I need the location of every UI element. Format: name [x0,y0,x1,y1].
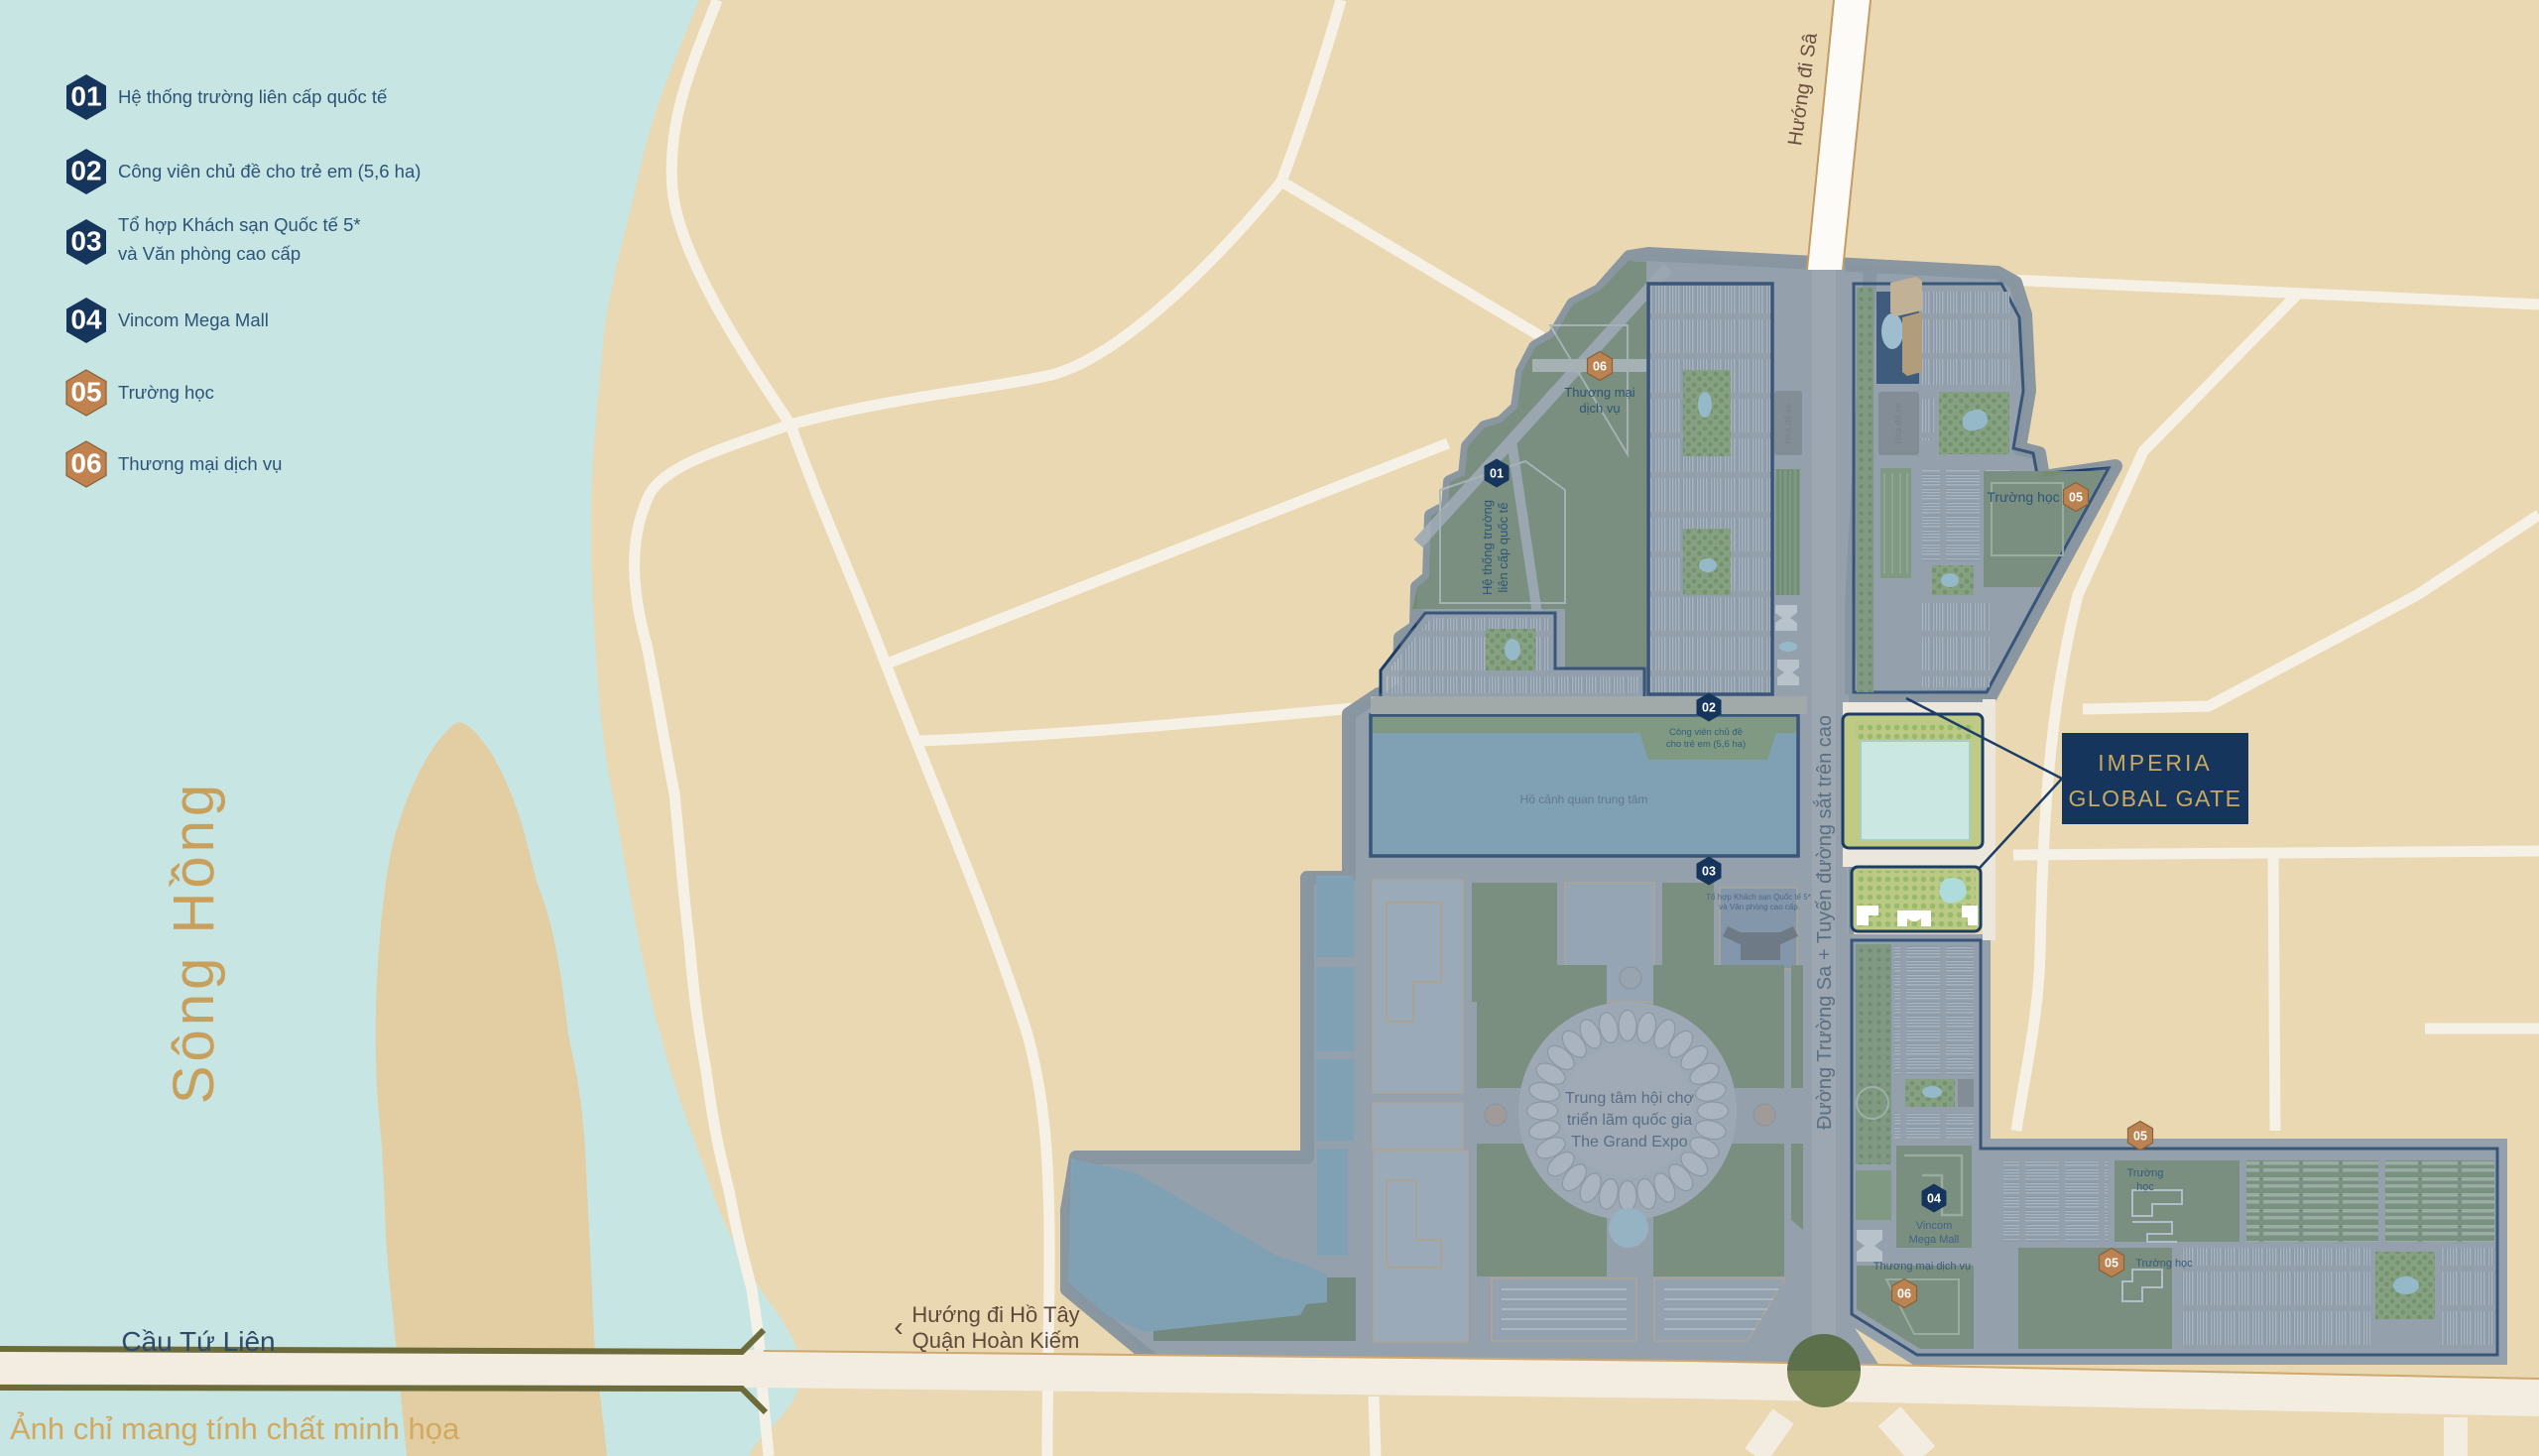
svg-text:05: 05 [2133,1130,2147,1144]
svg-text:Hướng đi Hồ Tây: Hướng đi Hồ Tây [911,1302,1079,1327]
svg-text:Hệ thống trường liên cấp quốc: Hệ thống trường liên cấp quốc tế [118,86,388,107]
svg-text:Trung tâm hội chợ: Trung tâm hội chợ [1565,1090,1694,1107]
svg-text:triển lãm quốc gia: triển lãm quốc gia [1567,1111,1692,1129]
svg-text:02: 02 [1702,701,1716,715]
svg-text:IMPERIA: IMPERIA [2098,750,2213,776]
svg-text:06: 06 [1593,360,1607,374]
svg-text:Thương mại: Thương mại [1564,385,1635,400]
svg-text:cho trẻ em (5,6 ha): cho trẻ em (5,6 ha) [1666,739,1746,750]
svg-text:Đường Trường Sa + Tuyến đường: Đường Trường Sa + Tuyến đường sắt trên c… [1813,715,1836,1130]
svg-text:02: 02 [70,156,101,186]
svg-text:Thương mại dịch vụ: Thương mại dịch vụ [118,453,282,474]
svg-text:GLOBAL GATE: GLOBAL GATE [2069,786,2242,811]
svg-text:Trường học: Trường học [2135,1258,2193,1270]
svg-text:Hồ cảnh quan trung tâm: Hồ cảnh quan trung tâm [1520,792,1648,806]
svg-text:03: 03 [1702,865,1716,879]
svg-text:Thương mại dịch vụ: Thương mại dịch vụ [1874,1261,1971,1273]
svg-text:Tổ hợp Khách sạn Quốc tế 5*: Tổ hợp Khách sạn Quốc tế 5* [118,214,361,235]
svg-text:và Văn phòng cao cấp: và Văn phòng cao cấp [118,243,301,264]
svg-text:Công viên chủ đề: Công viên chủ đề [1669,727,1743,738]
svg-text:Công viên chủ đề cho trẻ em (5: Công viên chủ đề cho trẻ em (5,6 ha) [118,161,421,182]
svg-text:04: 04 [70,304,102,335]
svg-text:Tổ hợp Khách sạn Quốc tế 5*: Tổ hợp Khách sạn Quốc tế 5* [1706,893,1811,902]
svg-text:The Grand Expo: The Grand Expo [1571,1134,1688,1151]
svg-text:dịch vụ: dịch vụ [1579,401,1620,416]
svg-text:06: 06 [70,448,101,479]
svg-text:Vincom Mega Mall: Vincom Mega Mall [118,309,269,330]
svg-text:Mega Mall: Mega Mall [1909,1234,1960,1246]
svg-text:Trường học: Trường học [118,382,214,403]
svg-text:05: 05 [2105,1257,2118,1271]
svg-text:Nhà để xe: Nhà để xe [1893,403,1903,443]
svg-text:Sông Hồng: Sông Hồng [162,781,226,1104]
svg-text:liên cấp quốc tế: liên cấp quốc tế [1496,502,1511,593]
svg-text:Trường học: Trường học [1987,489,2059,505]
svg-text:Hệ thống trường: Hệ thống trường [1480,500,1495,595]
svg-text:học: học [2136,1181,2154,1193]
svg-text:Cầu Tứ Liên: Cầu Tứ Liên [121,1326,275,1357]
svg-text:01: 01 [70,81,101,112]
svg-text:05: 05 [2069,491,2083,505]
svg-text:Vincom: Vincom [1916,1220,1952,1232]
svg-text:Ảnh chỉ mang tính chất minh họ: Ảnh chỉ mang tính chất minh họa [10,1411,460,1446]
svg-text:và Văn phòng cao cấp: và Văn phòng cao cấp [1719,903,1798,911]
svg-text:‹: ‹ [894,1311,903,1342]
svg-text:03: 03 [70,226,101,257]
svg-text:Quận Hoàn Kiếm: Quận Hoàn Kiếm [912,1328,1080,1353]
svg-text:01: 01 [1490,467,1504,481]
svg-text:05: 05 [70,377,101,408]
svg-text:06: 06 [1897,1287,1911,1301]
svg-text:Nhà để xe: Nhà để xe [1783,403,1793,443]
svg-text:04: 04 [1927,1192,1941,1206]
svg-text:Trường: Trường [2127,1167,2164,1179]
